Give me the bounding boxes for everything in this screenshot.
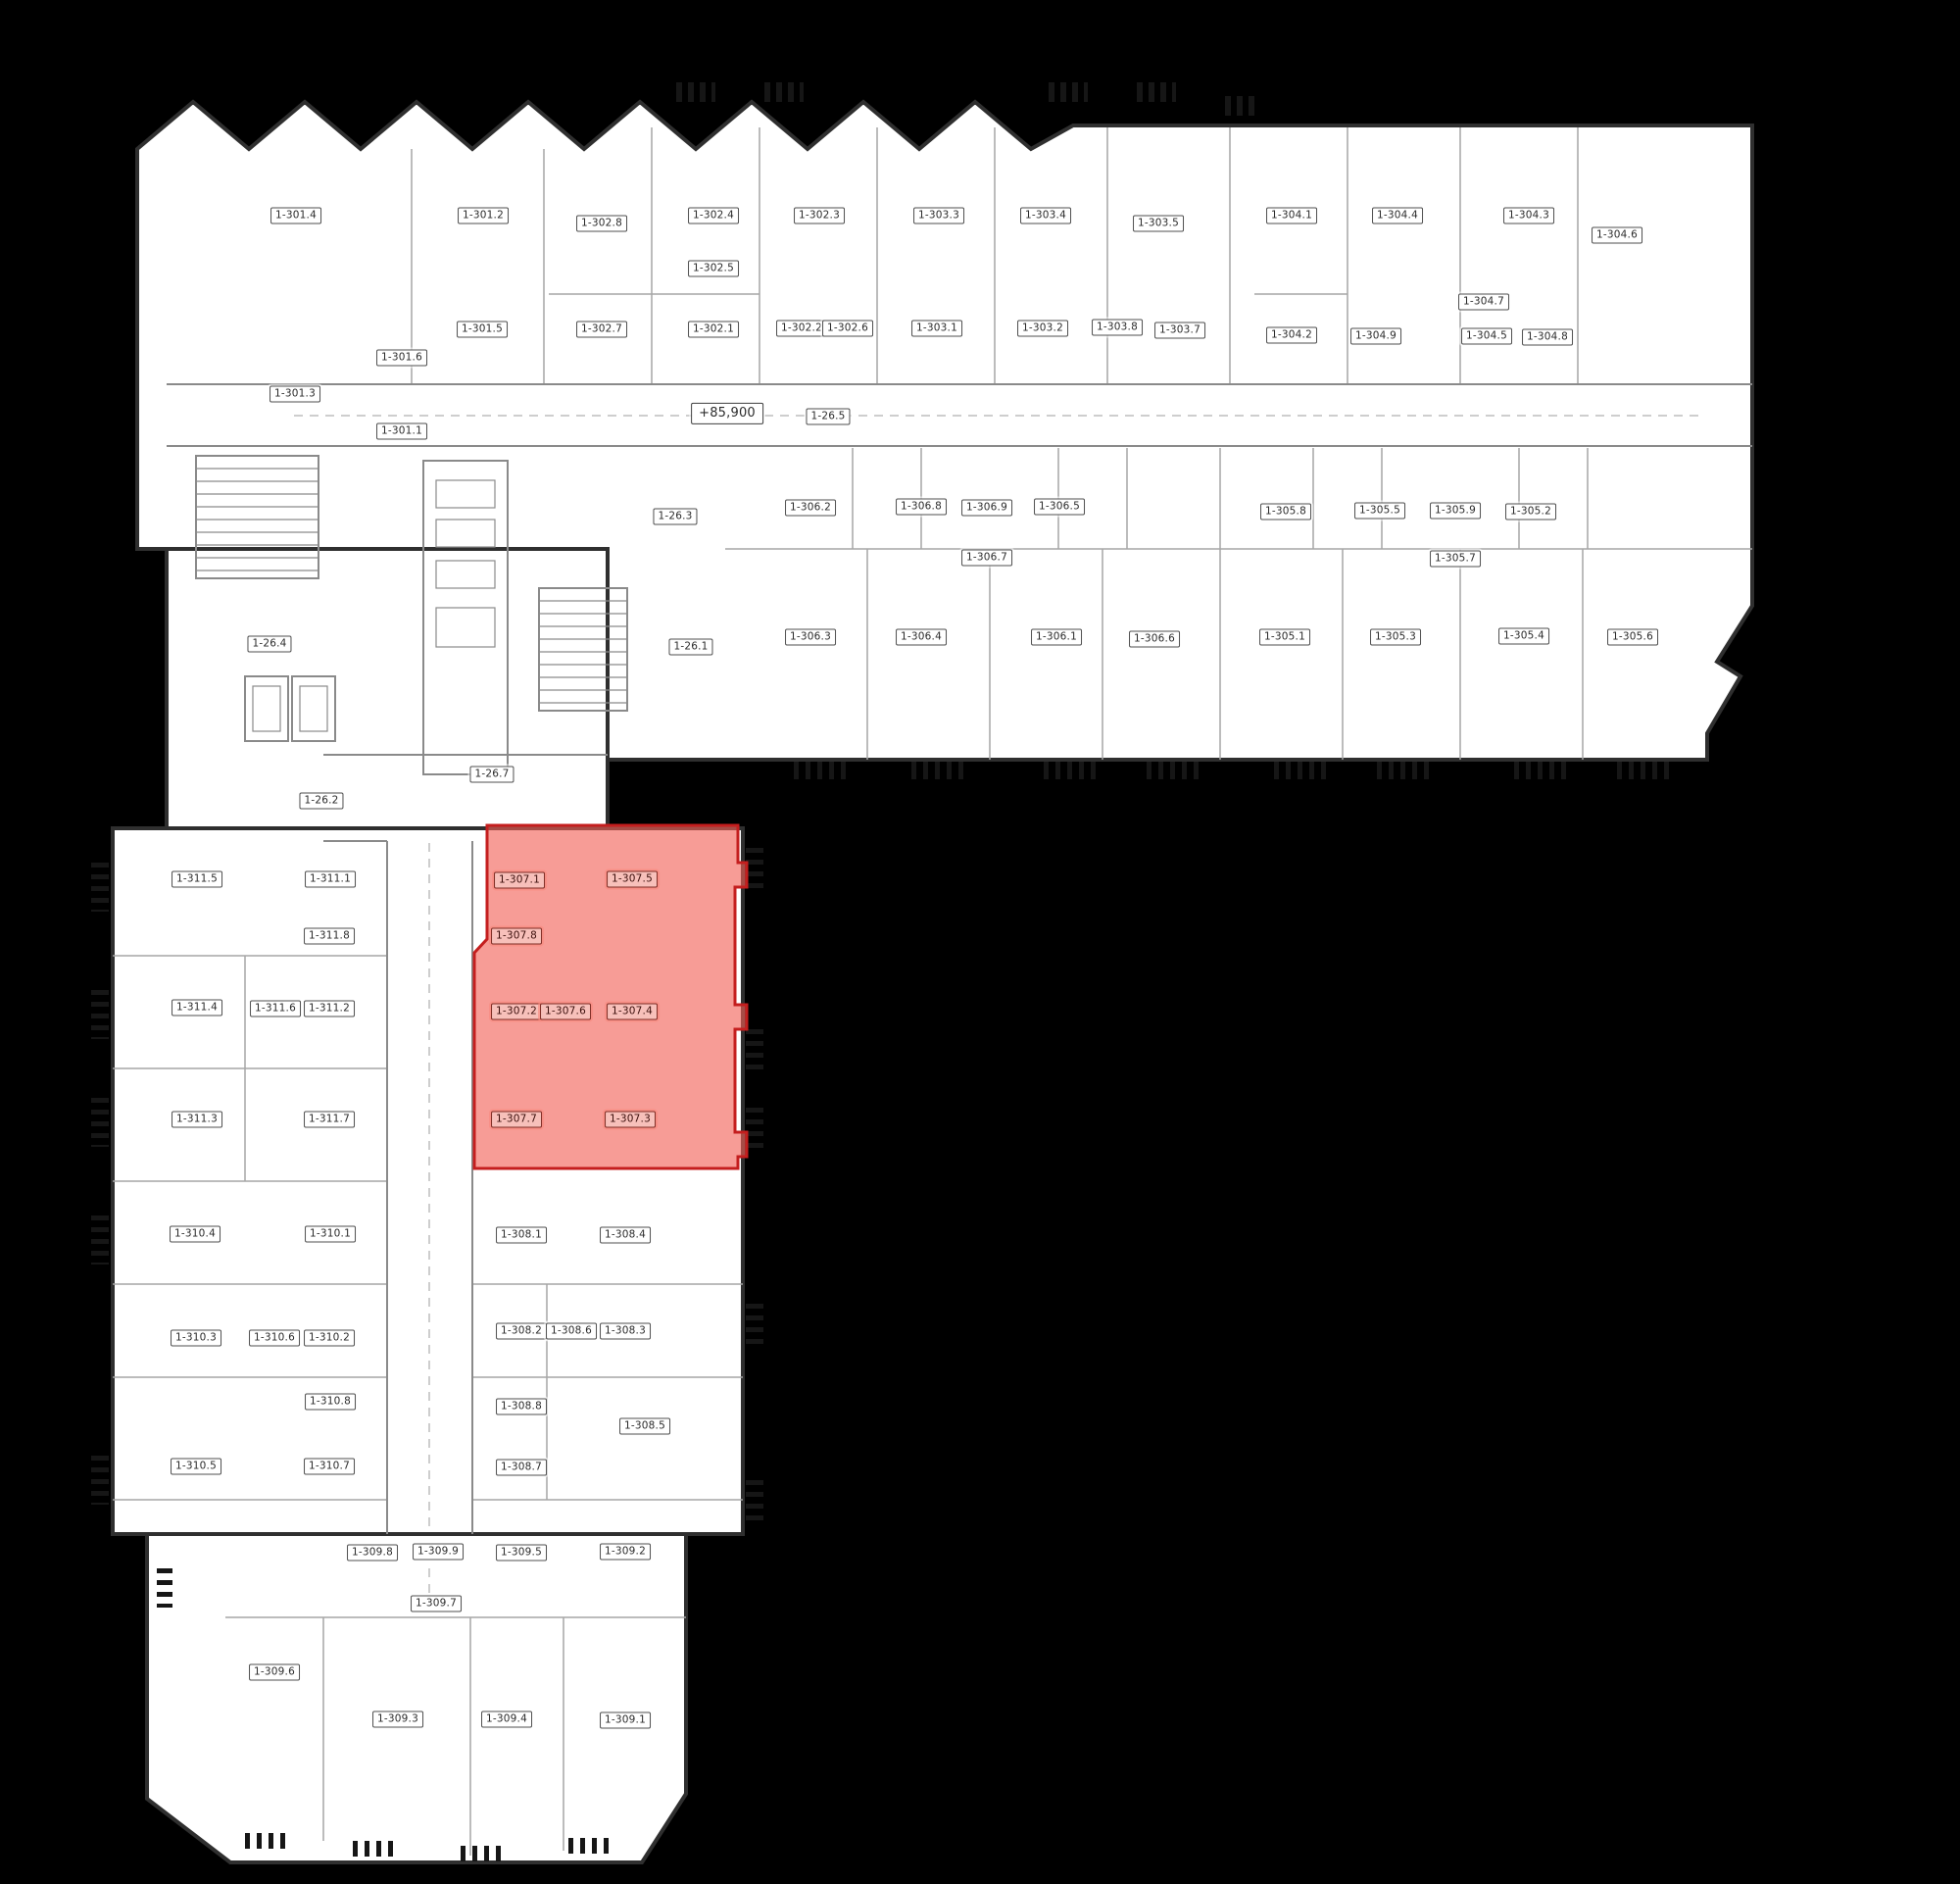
room-label-1-308.6: 1-308.6 [546,1322,597,1339]
room-label-1-301.1: 1-301.1 [376,422,427,439]
room-label-1-307.8[interactable]: 1-307.8 [491,927,542,944]
room-label-1-302.6: 1-302.6 [822,320,873,336]
room-label-1-309.6: 1-309.6 [249,1663,300,1680]
room-label-1-309.3: 1-309.3 [372,1710,423,1727]
room-label-1-26.3: 1-26.3 [653,508,697,524]
room-label-1-310.1: 1-310.1 [305,1225,356,1242]
room-label-1-303.1: 1-303.1 [911,320,962,336]
room-label-1-26.1: 1-26.1 [668,638,712,655]
room-label-1-305.2: 1-305.2 [1505,503,1556,520]
room-label-1-302.2: 1-302.2 [776,320,827,336]
room-label-1-310.3: 1-310.3 [171,1329,221,1346]
room-label-1-301.2: 1-301.2 [458,207,509,223]
room-label-1-301.5: 1-301.5 [457,321,508,337]
room-label-1-303.5: 1-303.5 [1133,215,1184,231]
floor-plan-page: +85,900 1-301.41-301.21-302.81-302.41-30… [0,0,1960,1884]
room-label-1-305.1: 1-305.1 [1259,628,1310,645]
room-label-1-26.5: 1-26.5 [806,408,850,424]
room-label-1-306.3: 1-306.3 [785,628,836,645]
room-label-1-307.6[interactable]: 1-307.6 [540,1003,591,1019]
room-label-1-302.3: 1-302.3 [794,207,845,223]
room-label-1-305.7: 1-305.7 [1430,550,1481,567]
room-label-1-304.4: 1-304.4 [1372,207,1423,223]
room-label-1-301.4: 1-301.4 [270,207,321,223]
room-label-1-310.5: 1-310.5 [171,1458,221,1474]
room-label-1-305.9: 1-305.9 [1430,502,1481,519]
room-label-1-301.3: 1-301.3 [269,385,320,402]
room-label-1-309.2: 1-309.2 [600,1543,651,1560]
room-label-1-304.3: 1-304.3 [1503,207,1554,223]
room-label-1-303.7: 1-303.7 [1154,322,1205,338]
room-label-1-303.4: 1-303.4 [1020,207,1071,223]
room-label-1-306.9: 1-306.9 [961,499,1012,516]
room-label-1-304.1: 1-304.1 [1266,207,1317,223]
room-label-1-306.8: 1-306.8 [896,498,947,515]
room-label-1-309.8: 1-309.8 [347,1544,398,1561]
room-label-1-311.5: 1-311.5 [171,870,222,887]
room-label-1-307.2[interactable]: 1-307.2 [491,1003,542,1019]
room-label-1-307.4[interactable]: 1-307.4 [607,1003,658,1019]
room-label-1-302.1: 1-302.1 [688,321,739,337]
room-label-1-304.7: 1-304.7 [1458,293,1509,310]
room-label-1-26.7: 1-26.7 [469,766,514,782]
room-label-1-310.8: 1-310.8 [305,1393,356,1410]
room-label-1-307.5[interactable]: 1-307.5 [607,870,658,887]
room-label-1-302.8: 1-302.8 [576,215,627,231]
room-label-1-305.6: 1-305.6 [1607,628,1658,645]
room-label-1-302.7: 1-302.7 [576,321,627,337]
room-label-1-306.2: 1-306.2 [785,499,836,516]
room-label-1-305.4: 1-305.4 [1498,627,1549,644]
room-label-1-310.6: 1-310.6 [249,1329,300,1346]
room-label-1-308.1: 1-308.1 [496,1226,547,1243]
room-labels-layer: +85,900 1-301.41-301.21-302.81-302.41-30… [0,0,1960,1884]
room-label-1-308.5: 1-308.5 [619,1417,670,1434]
room-label-1-303.2: 1-303.2 [1017,320,1068,336]
room-label-1-311.1: 1-311.1 [305,870,356,887]
room-label-1-311.6: 1-311.6 [250,1000,301,1016]
room-label-1-309.5: 1-309.5 [496,1544,547,1561]
room-label-1-309.9: 1-309.9 [413,1543,464,1560]
room-label-1-309.1: 1-309.1 [600,1711,651,1728]
room-label-1-302.5: 1-302.5 [688,260,739,276]
room-label-1-311.7: 1-311.7 [304,1111,355,1127]
room-label-1-308.2: 1-308.2 [496,1322,547,1339]
room-label-1-307.3[interactable]: 1-307.3 [605,1111,656,1127]
room-label-1-306.5: 1-306.5 [1034,498,1085,515]
room-label-1-310.7: 1-310.7 [304,1458,355,1474]
room-label-1-310.2: 1-310.2 [304,1329,355,1346]
room-label-1-304.6: 1-304.6 [1592,226,1642,243]
room-label-1-301.6: 1-301.6 [376,349,427,366]
room-label-1-307.7[interactable]: 1-307.7 [491,1111,542,1127]
room-label-1-302.4: 1-302.4 [688,207,739,223]
room-label-1-304.5: 1-304.5 [1461,327,1512,344]
room-label-1-308.4: 1-308.4 [600,1226,651,1243]
room-label-1-308.8: 1-308.8 [496,1398,547,1414]
room-label-1-307.1[interactable]: 1-307.1 [494,871,545,888]
room-label-1-26.4: 1-26.4 [247,635,291,652]
room-label-1-309.4: 1-309.4 [481,1710,532,1727]
room-label-1-309.7: 1-309.7 [411,1595,462,1611]
room-label-1-306.1: 1-306.1 [1031,628,1082,645]
room-label-1-305.8: 1-305.8 [1260,503,1311,520]
room-label-1-26.2: 1-26.2 [299,792,343,809]
room-label-1-303.3: 1-303.3 [913,207,964,223]
room-label-1-304.9: 1-304.9 [1350,327,1401,344]
elevation-mark: +85,900 [691,403,763,424]
room-label-1-308.7: 1-308.7 [496,1459,547,1475]
room-label-1-311.8: 1-311.8 [304,927,355,944]
room-label-1-305.3: 1-305.3 [1370,628,1421,645]
room-label-1-311.3: 1-311.3 [171,1111,222,1127]
room-label-1-303.8: 1-303.8 [1092,319,1143,335]
room-label-1-311.2: 1-311.2 [304,1000,355,1016]
room-label-1-304.8: 1-304.8 [1522,328,1573,345]
room-label-1-311.4: 1-311.4 [171,999,222,1016]
room-label-1-306.7: 1-306.7 [961,549,1012,566]
room-label-1-310.4: 1-310.4 [170,1225,220,1242]
room-label-1-306.4: 1-306.4 [896,628,947,645]
room-label-1-306.6: 1-306.6 [1129,630,1180,647]
room-label-1-305.5: 1-305.5 [1354,502,1405,519]
room-label-1-308.3: 1-308.3 [600,1322,651,1339]
room-label-1-304.2: 1-304.2 [1266,326,1317,343]
